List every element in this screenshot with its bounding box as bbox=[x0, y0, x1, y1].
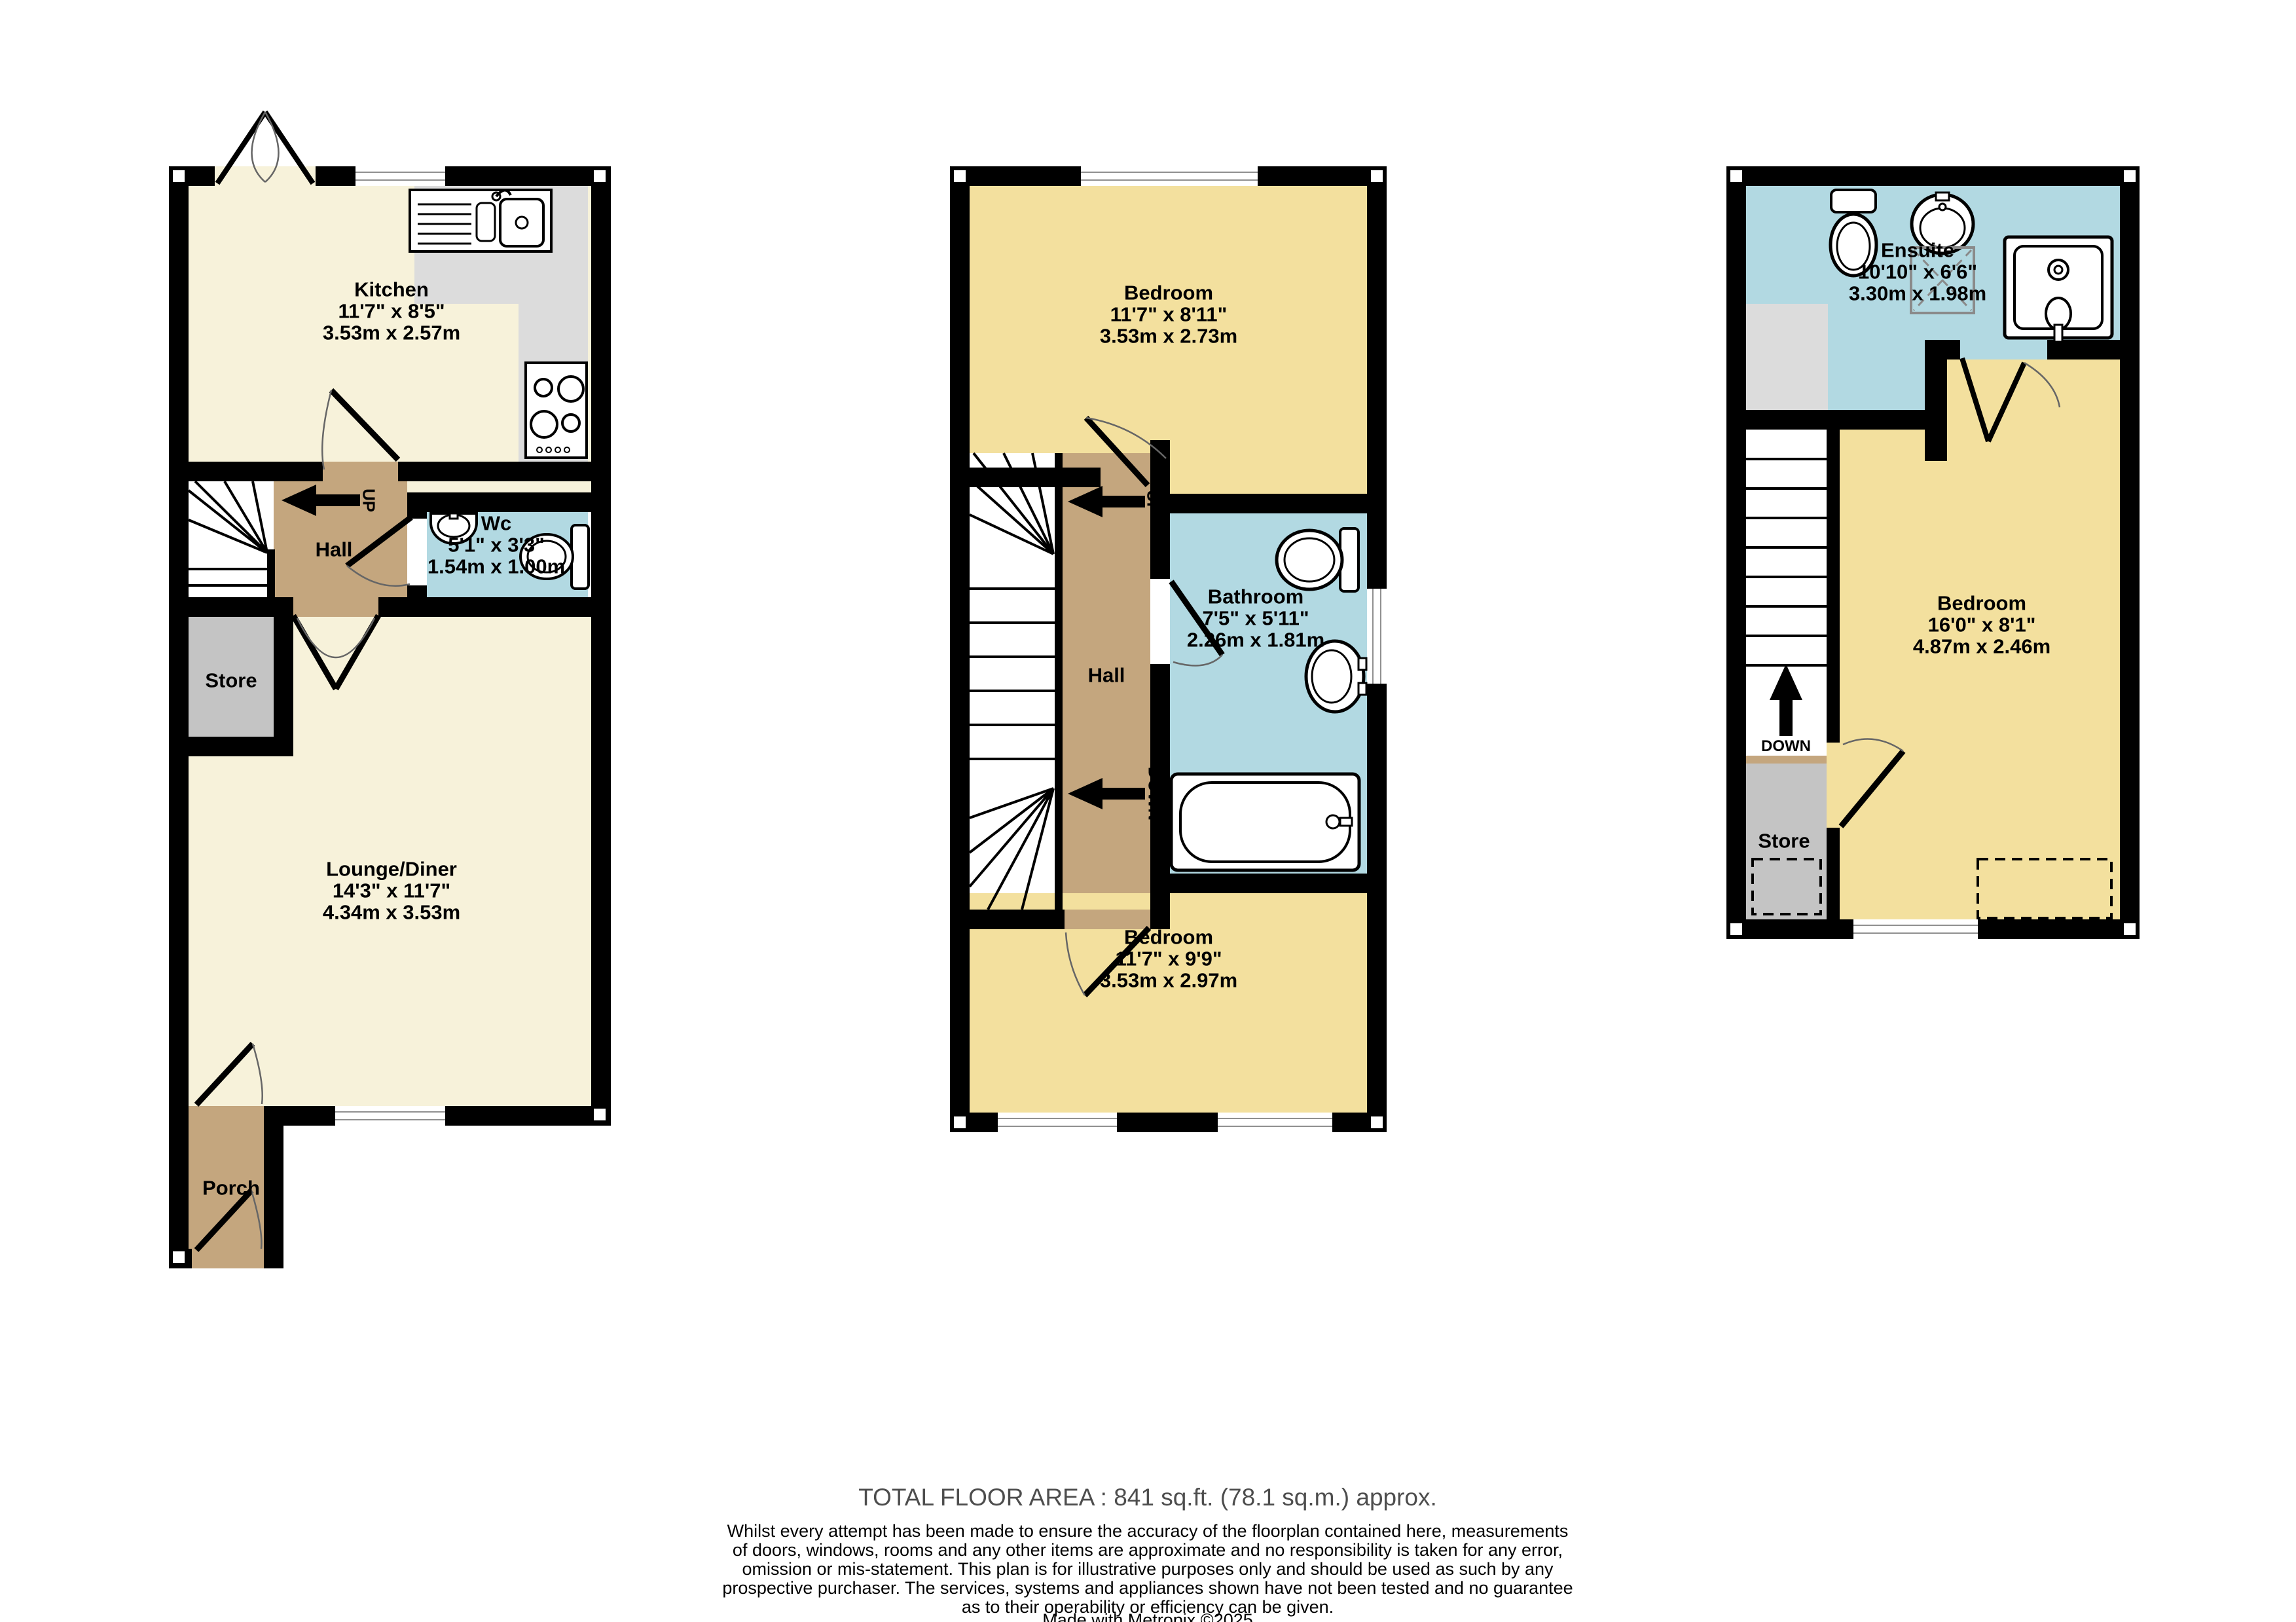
bedroom-label: Bedroom 16'0" x 8'1" 4.87m x 2.46m bbox=[1913, 593, 2050, 657]
room-dims-imperial: 7'5" x 5'11" bbox=[1187, 608, 1324, 629]
room-dims-imperial: 11'7" x 8'5" bbox=[323, 301, 460, 322]
up-arrow-icon bbox=[1068, 486, 1145, 517]
room-name: Lounge/Diner bbox=[323, 858, 460, 880]
kitchen-label: Kitchen 11'7" x 8'5" 3.53m x 2.57m bbox=[323, 279, 460, 344]
bedroom-label: Bedroom 11'7" x 9'9" 3.53m x 2.97m bbox=[1100, 927, 1237, 991]
total-floor-area: TOTAL FLOOR AREA : 841 sq.ft. (78.1 sq.m… bbox=[858, 1484, 1437, 1511]
room-dims-imperial: 11'7" x 9'9" bbox=[1100, 948, 1237, 970]
up-arrow-icon bbox=[282, 485, 360, 516]
entrance-double-door-swing bbox=[217, 112, 313, 183]
reduced-headroom-dashed bbox=[1753, 859, 2111, 918]
room-name: Bedroom bbox=[1100, 927, 1237, 948]
disclaimer-line: omission or mis-statement. This plan is … bbox=[742, 1560, 1553, 1579]
floorplan-canvas: Kitchen 11'7" x 8'5" 3.53m x 2.57m Wc 5'… bbox=[0, 0, 2296, 1622]
room-dims-imperial: 11'7" x 8'11" bbox=[1100, 304, 1237, 325]
lounge-door-swing bbox=[293, 616, 378, 689]
room-dims-imperial: 5'1" x 3'3" bbox=[428, 534, 565, 556]
hall-label: Hall bbox=[316, 539, 353, 561]
room-dims-metric: 3.30m x 1.98m bbox=[1849, 283, 1986, 304]
room-name: Bedroom bbox=[1100, 282, 1237, 304]
hall-label: Hall bbox=[1088, 665, 1125, 686]
room-dims-imperial: 10'10" x 6'6" bbox=[1849, 261, 1986, 283]
room-name: Ensuite bbox=[1849, 240, 1986, 261]
wc-label: Wc 5'1" x 3'3" 1.54m x 1.00m bbox=[428, 513, 565, 578]
lounge-label: Lounge/Diner 14'3" x 11'7" 4.34m x 3.53m bbox=[323, 858, 460, 923]
down-label: DOWN bbox=[1761, 737, 1811, 756]
stairs bbox=[1746, 459, 1827, 665]
stairs bbox=[970, 453, 1055, 910]
shower-enclosure-icon bbox=[2005, 237, 2112, 342]
disclaimer-line: Whilst every attempt has been made to en… bbox=[727, 1522, 1569, 1541]
room-dims-metric: 3.53m x 2.73m bbox=[1100, 325, 1237, 347]
room-name: Bedroom bbox=[1913, 593, 2050, 614]
room-name: Kitchen bbox=[323, 279, 460, 301]
store-label: Store bbox=[205, 670, 257, 691]
bedroom-door-swing bbox=[1841, 739, 1903, 826]
room-dims-metric: 2.26m x 1.81m bbox=[1187, 629, 1324, 651]
store-label: Store bbox=[1758, 830, 1810, 852]
down-arrow-icon bbox=[1068, 778, 1145, 809]
up-label: UP bbox=[359, 488, 379, 512]
down-label: DOWN bbox=[1144, 767, 1165, 820]
second-floor-plan: Ensuite 10'10" x 6'6" 3.30m x 1.98m Bedr… bbox=[1726, 166, 2140, 939]
disclaimer-line: of doors, windows, rooms and any other i… bbox=[733, 1541, 1563, 1560]
room-dims-metric: 3.53m x 2.97m bbox=[1100, 970, 1237, 991]
ground-floor-plan: Kitchen 11'7" x 8'5" 3.53m x 2.57m Wc 5'… bbox=[169, 166, 611, 1273]
down-arrow-icon bbox=[1770, 664, 1802, 736]
first-floor-plan: Bedroom 11'7" x 8'11" 3.53m x 2.73m Bath… bbox=[950, 166, 1387, 1132]
kitchen-door-swing bbox=[322, 390, 398, 470]
bedroom-label: Bedroom 11'7" x 8'11" 3.53m x 2.73m bbox=[1100, 282, 1237, 347]
bathroom-label: Bathroom 7'5" x 5'11" 2.26m x 1.81m bbox=[1187, 586, 1324, 651]
ensuite-door-swing bbox=[1962, 358, 2060, 441]
room-dims-metric: 4.87m x 2.46m bbox=[1913, 636, 2050, 657]
room-dims-metric: 3.53m x 2.57m bbox=[323, 322, 460, 344]
up-label: UP bbox=[1143, 490, 1163, 513]
room-name: Bathroom bbox=[1187, 586, 1324, 608]
room-dims-metric: 1.54m x 1.00m bbox=[428, 556, 565, 578]
bedroom-door-swing bbox=[1086, 418, 1166, 485]
wc-door-swing bbox=[347, 517, 411, 586]
room-dims-metric: 4.34m x 3.53m bbox=[323, 902, 460, 923]
toilet-icon bbox=[1277, 528, 1358, 591]
stairs bbox=[189, 481, 275, 617]
basin-icon bbox=[1306, 641, 1366, 712]
ensuite-label: Ensuite 10'10" x 6'6" 3.30m x 1.98m bbox=[1849, 240, 1986, 304]
room-name: Wc bbox=[428, 513, 565, 534]
bath-icon bbox=[1171, 774, 1359, 870]
hob-icon bbox=[526, 363, 587, 458]
metropix-credit: Made with Metropix ©2025 bbox=[1042, 1611, 1253, 1622]
room-dims-imperial: 14'3" x 11'7" bbox=[323, 880, 460, 902]
room-dims-imperial: 16'0" x 8'1" bbox=[1913, 614, 2050, 636]
porch-inner-door-swing bbox=[196, 1044, 263, 1105]
kitchen-sink-icon bbox=[410, 190, 551, 251]
disclaimer-line: prospective purchaser. The services, sys… bbox=[722, 1579, 1573, 1598]
porch-entry-door-swing bbox=[196, 1190, 261, 1250]
porch-label: Porch bbox=[202, 1177, 260, 1199]
